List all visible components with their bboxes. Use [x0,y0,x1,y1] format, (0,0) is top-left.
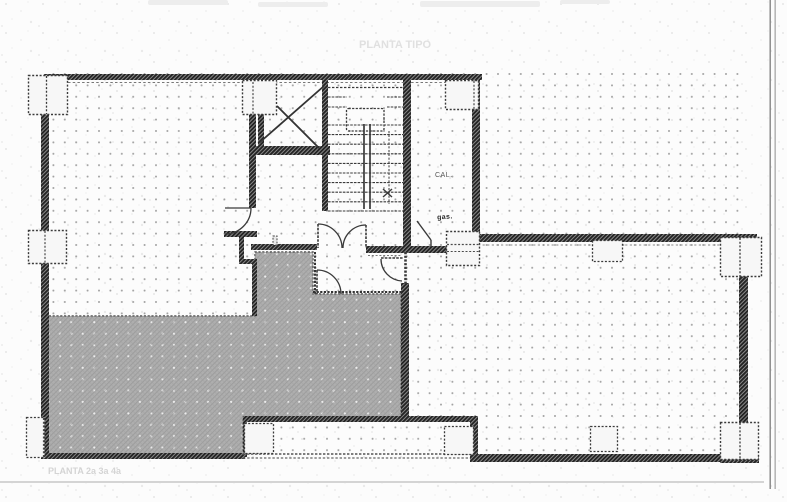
svg-text:PLANTA 2a 3a 4a: PLANTA 2a 3a 4a [48,466,122,476]
svg-text:gas.: gas. [437,213,453,221]
svg-text:PLANTA TIPO: PLANTA TIPO [359,39,432,51]
svg-text:CAL.: CAL. [435,172,453,179]
